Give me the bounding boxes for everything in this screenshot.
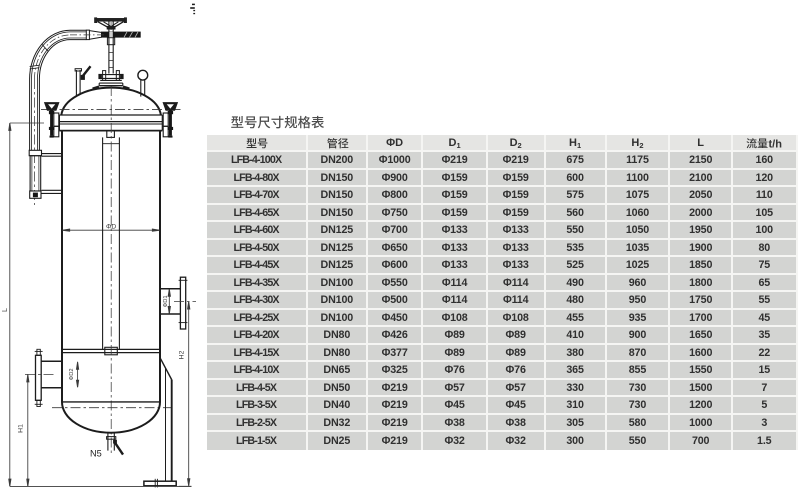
svg-text:t/h: t/h bbox=[769, 138, 783, 150]
